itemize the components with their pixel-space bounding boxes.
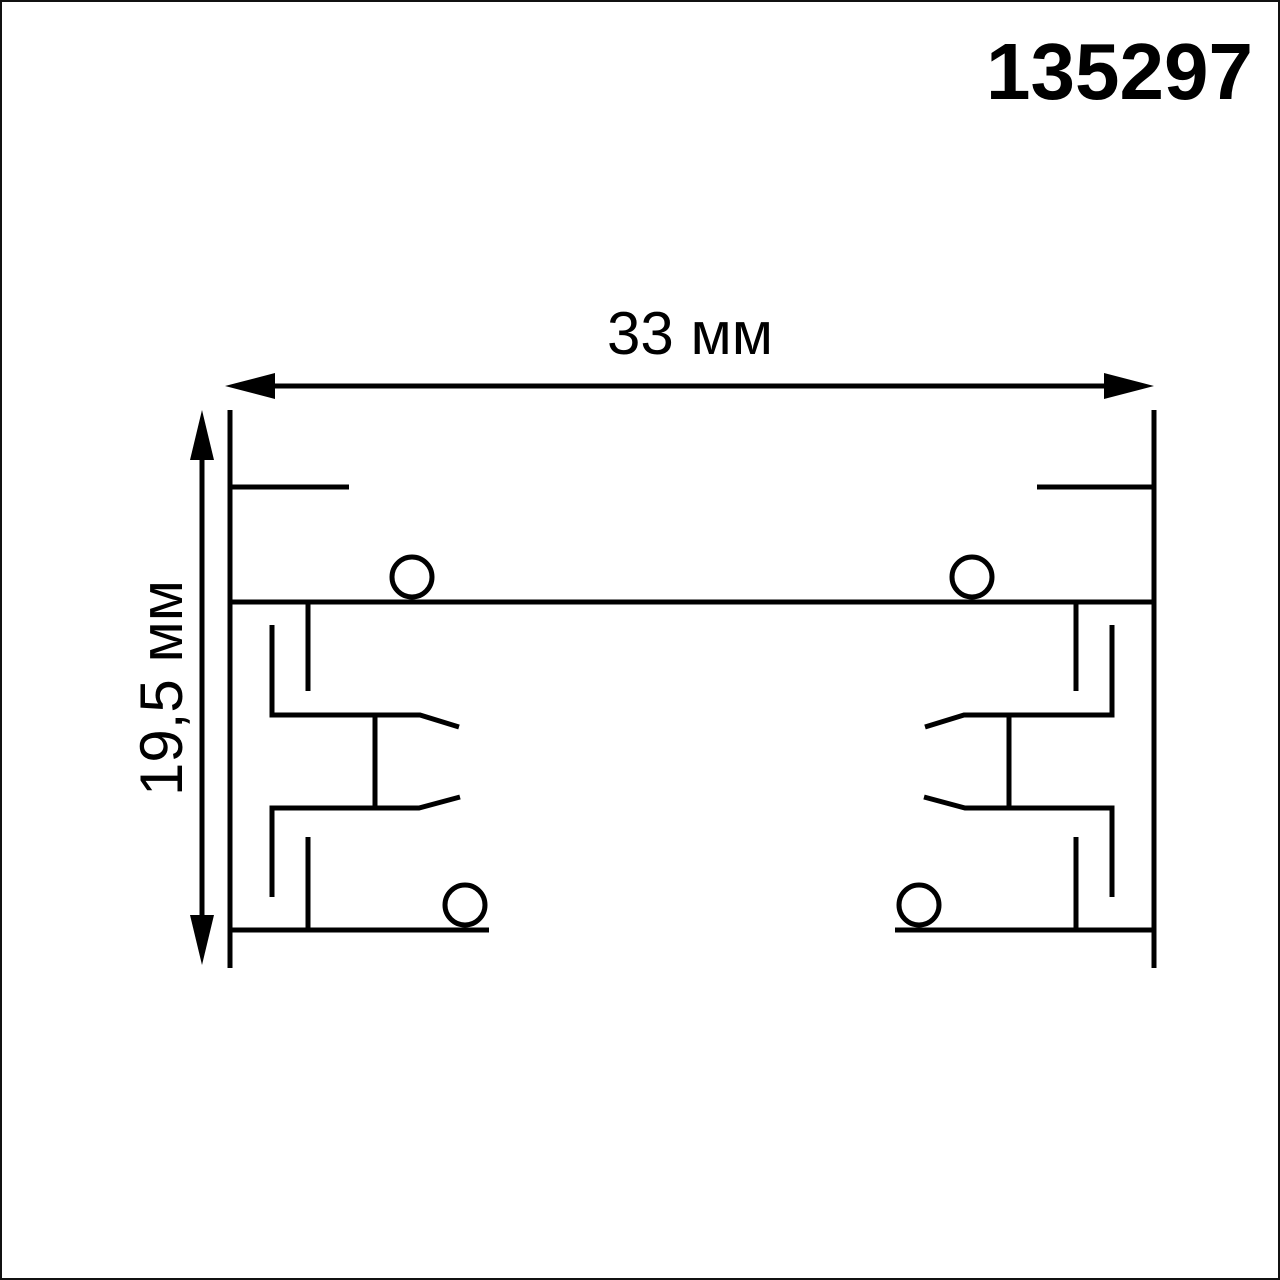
height-dimension: 19,5 мм: [128, 410, 214, 965]
height-arrow-up-icon: [190, 410, 214, 460]
width-dimension-label: 33 мм: [607, 300, 773, 367]
left-contact-pocket: [272, 602, 460, 930]
product-code-label: 135297: [986, 27, 1253, 116]
width-dimension: 33 мм: [225, 300, 1154, 399]
width-arrow-left-icon: [225, 373, 275, 399]
drawing-page: 135297 33 мм 19,5 мм: [0, 0, 1280, 1280]
track-profile-cross-section: [230, 410, 1154, 968]
right-contact-pocket: [924, 602, 1112, 930]
left-lower-finger: [272, 797, 460, 897]
height-dimension-label: 19,5 мм: [128, 580, 195, 796]
conductor-circle-bottom-right: [899, 885, 939, 925]
right-lower-finger: [924, 797, 1112, 897]
conductor-circle-bottom-left: [445, 885, 485, 925]
conductor-circle-top-left: [392, 557, 432, 597]
width-arrow-right-icon: [1104, 373, 1154, 399]
right-upper-finger: [925, 625, 1112, 727]
conductor-circle-top-right: [952, 557, 992, 597]
height-arrow-down-icon: [190, 915, 214, 965]
technical-drawing-canvas: 135297 33 мм 19,5 мм: [2, 2, 1278, 1278]
left-upper-finger: [272, 625, 459, 727]
